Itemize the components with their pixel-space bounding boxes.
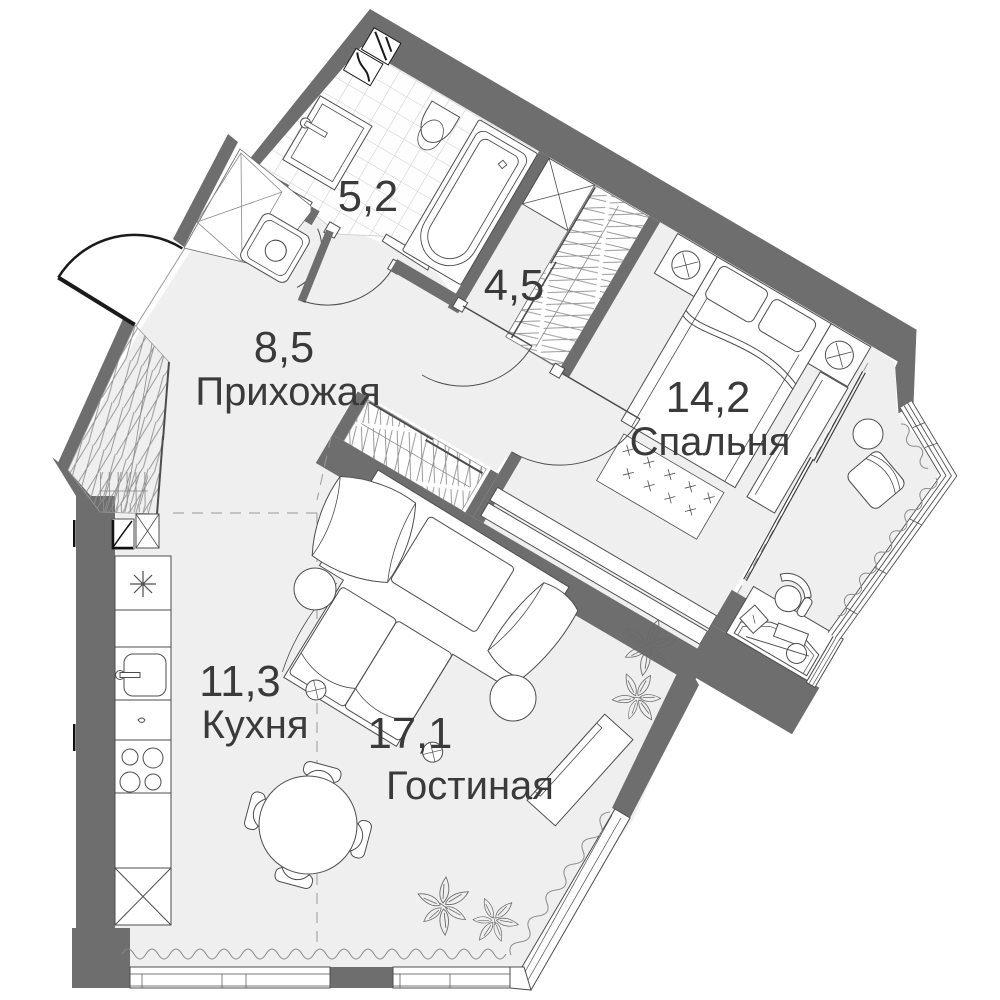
svg-text:Прихожая: Прихожая	[195, 370, 380, 414]
svg-text:Кухня: Кухня	[201, 703, 308, 747]
svg-text:11,3: 11,3	[199, 658, 280, 706]
svg-text:4,5: 4,5	[484, 262, 544, 310]
svg-text:17,1: 17,1	[368, 710, 453, 758]
svg-text:8,5: 8,5	[254, 324, 314, 372]
svg-text:14,2: 14,2	[666, 374, 751, 422]
svg-text:5,2: 5,2	[338, 173, 398, 221]
svg-text:Гостиная: Гостиная	[386, 764, 554, 808]
svg-text:Спальня: Спальня	[630, 420, 791, 464]
